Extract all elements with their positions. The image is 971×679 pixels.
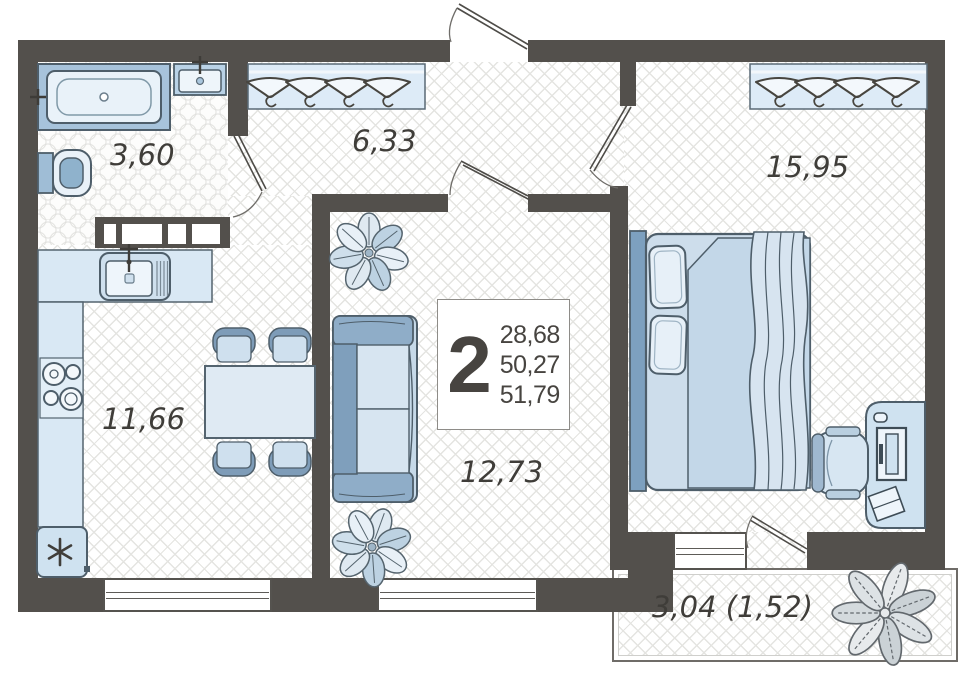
dining-chair [213,442,255,476]
kitchen-sink [100,240,170,300]
living-area-value: 28,68 [500,320,560,350]
fridge [37,527,90,577]
dining-table [205,366,315,438]
balcony-area-label: 3,04 (1,52) [652,590,813,624]
bedroom-wardrobe [750,64,927,109]
dining-chair [269,328,311,362]
door-balcony [746,516,807,553]
living-room-area-label: 12,73 [460,455,543,489]
door-bedroom [590,105,631,188]
bathtub [30,64,170,130]
toilet [38,150,91,196]
dining-chair [269,442,311,476]
plant [328,213,411,294]
desk-chair [812,427,868,499]
kitchen-area-label: 11,66 [102,402,185,436]
bedroom-area-label: 15,95 [766,150,849,184]
door-living-room [450,161,530,200]
floorplan: 3,60 6,33 15,95 11,66 12,73 3,04 (1,52) … [0,0,971,679]
sofa [333,316,417,502]
unit-area-values: 28,68 50,27 51,79 [500,320,560,410]
door-entrance [449,4,529,49]
bathroom-sink [174,56,226,95]
unit-rooms-count: 2 [447,325,492,405]
bathroom-area-label: 3,60 [110,138,175,172]
hallway-area-label: 6,33 [352,124,417,158]
plant [319,495,424,599]
stove [40,358,83,418]
unit-info-box: 2 28,68 50,27 51,79 [437,299,570,430]
desk [866,402,925,528]
total-area-with-balcony: 51,79 [500,380,560,410]
balcony-plant [832,560,938,667]
hallway-wardrobe [247,64,425,109]
mouse-icon [874,413,887,422]
shaft-niches [104,224,220,244]
door-bathroom [233,134,266,217]
dining-set [205,328,315,476]
bed [630,231,810,491]
dining-chair [213,328,255,362]
total-area-value: 50,27 [500,350,560,380]
